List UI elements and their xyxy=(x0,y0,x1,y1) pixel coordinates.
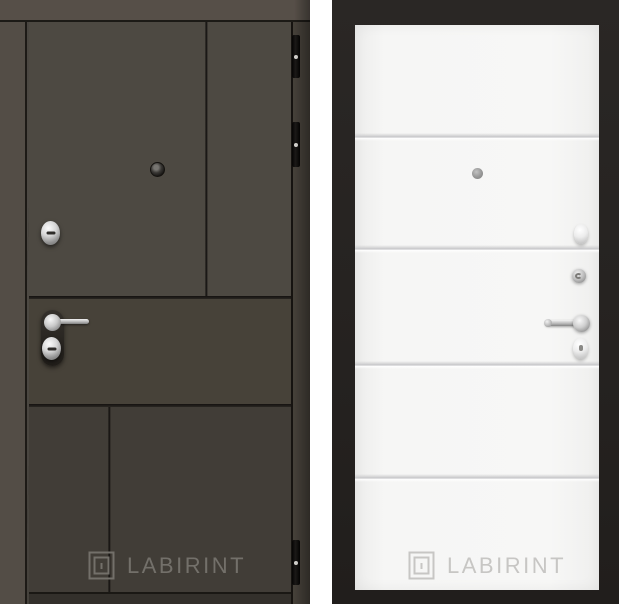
labyrinth-logo-icon xyxy=(408,551,435,580)
left-door-handle-panel xyxy=(29,299,291,404)
lower-cylinder-lock xyxy=(42,337,61,360)
right-door-photo: LABIRINT xyxy=(332,0,619,604)
handle-rose xyxy=(44,314,61,331)
brand-watermark-right: LABIRINT xyxy=(408,551,566,580)
left-door-bottom-rail xyxy=(29,592,291,604)
handle-rose xyxy=(573,315,590,332)
vertical-groove xyxy=(205,22,208,296)
keyhole-slot xyxy=(47,347,56,350)
horizontal-groove xyxy=(355,245,599,253)
labyrinth-logo-icon xyxy=(88,551,115,580)
left-door-leaf xyxy=(29,22,291,604)
upper-cylinder-lock xyxy=(41,221,60,245)
door-product-photo: LABIRINT LABIRINT xyxy=(0,0,619,604)
keyhole-escutcheon xyxy=(573,338,588,359)
handle-end-cap xyxy=(544,319,552,327)
horizontal-groove xyxy=(355,361,599,369)
door-frame-left-jamb xyxy=(0,22,27,604)
thumbturn-detail xyxy=(575,273,582,279)
right-door-leaf xyxy=(355,25,599,590)
keyhole-slot xyxy=(46,232,55,235)
door-frame-lintel xyxy=(0,0,310,22)
brand-watermark-text: LABIRINT xyxy=(447,552,566,580)
horizontal-groove xyxy=(355,133,599,141)
horizontal-groove xyxy=(355,474,599,482)
left-door-photo: LABIRINT xyxy=(0,0,310,604)
keyhole-slot xyxy=(579,345,583,351)
edge-shadow xyxy=(294,0,310,604)
thumbturn-knob xyxy=(572,269,586,283)
brand-watermark-text: LABIRINT xyxy=(127,552,246,580)
upper-escutcheon xyxy=(574,224,588,244)
peephole-icon xyxy=(472,168,483,179)
brand-watermark-left: LABIRINT xyxy=(88,551,246,580)
peephole-icon xyxy=(150,162,165,177)
left-door-upper-panel xyxy=(29,22,291,296)
